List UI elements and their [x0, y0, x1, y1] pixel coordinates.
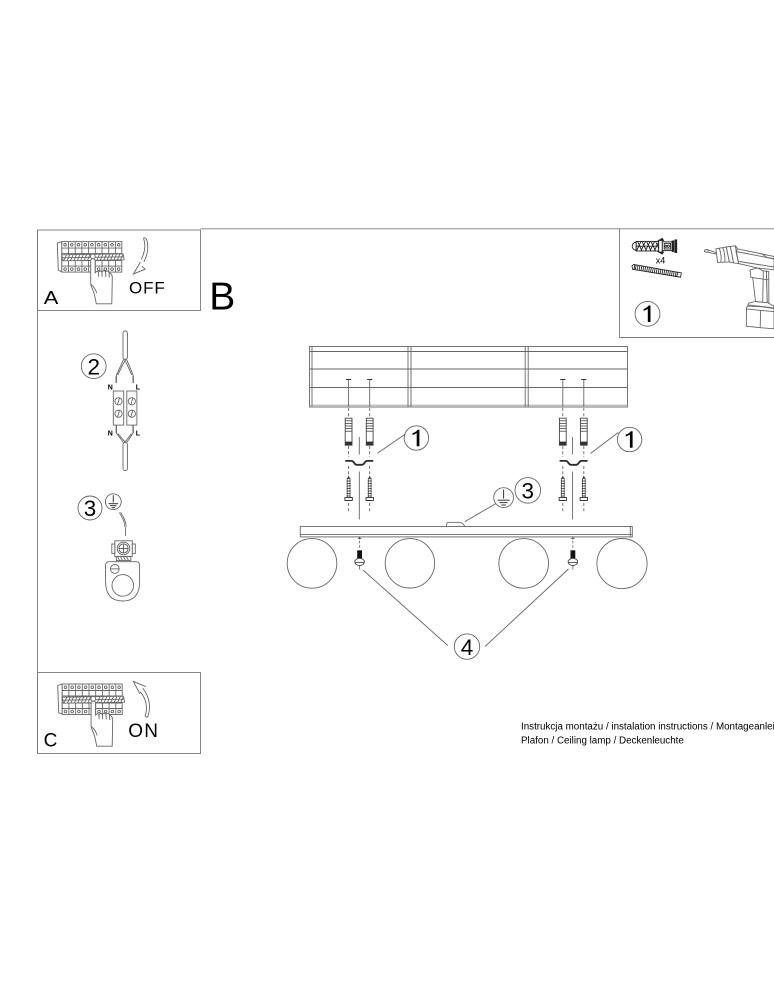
- svg-text:3: 3: [522, 479, 535, 504]
- svg-text:3: 3: [84, 496, 97, 521]
- svg-text:N: N: [108, 430, 113, 437]
- svg-text:ON: ON: [128, 721, 159, 742]
- svg-text:C: C: [44, 730, 58, 751]
- svg-text:L: L: [136, 430, 141, 437]
- svg-text:Instrukcja montażu / instalati: Instrukcja montażu / instalation instruc…: [521, 721, 774, 732]
- svg-text:x4: x4: [656, 256, 666, 266]
- svg-text:2: 2: [87, 354, 100, 379]
- svg-text:N: N: [108, 384, 113, 391]
- svg-text:Plafon / Ceiling lamp / Decken: Plafon / Ceiling lamp / Deckenleuchte: [521, 735, 684, 746]
- svg-text:L: L: [136, 384, 141, 391]
- svg-text:4: 4: [461, 635, 474, 660]
- svg-text:A: A: [44, 288, 59, 308]
- svg-text:OFF: OFF: [129, 279, 166, 298]
- svg-text:B: B: [209, 275, 235, 318]
